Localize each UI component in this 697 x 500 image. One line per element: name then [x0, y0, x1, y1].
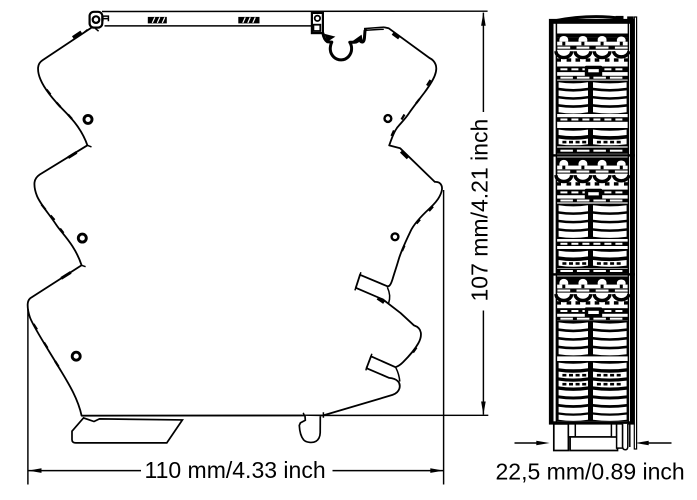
svg-text:107 mm/4.21 inch: 107 mm/4.21 inch [467, 119, 493, 302]
svg-text:110 mm/4.33 inch: 110 mm/4.33 inch [145, 457, 326, 483]
svg-text:22,5 mm/0.89 inch: 22,5 mm/0.89 inch [496, 459, 685, 485]
